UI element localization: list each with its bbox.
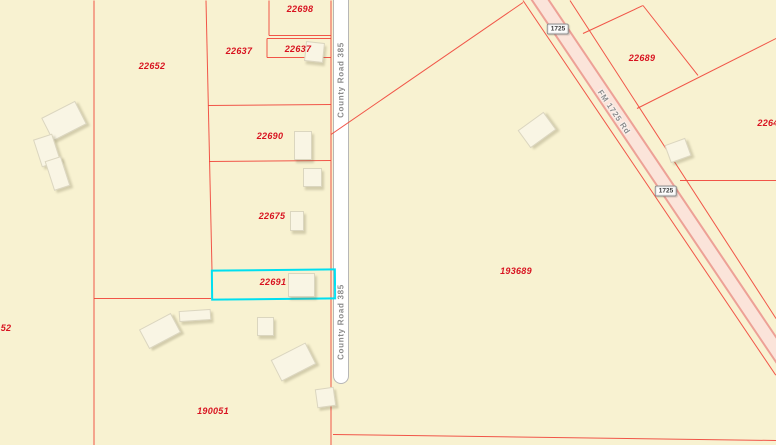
map-canvas[interactable]: County Road 385County Road 385FM 1725 Rd… xyxy=(0,0,776,445)
parcel-label-22690: 22690 xyxy=(257,131,284,141)
parcel-label-193689: 193689 xyxy=(500,266,532,276)
parcel-label-22675: 22675 xyxy=(259,211,286,221)
parcel-label-52: 52 xyxy=(1,323,12,333)
parcel-label-190051: 190051 xyxy=(197,406,229,416)
parcel-label-2264: 2264 xyxy=(757,118,776,128)
parcel-label-22637: 22637 xyxy=(285,44,312,54)
parcel-label-22652: 22652 xyxy=(139,61,166,71)
parcel-label-22637: 22637 xyxy=(226,46,253,56)
parcel-label-22691: 22691 xyxy=(260,277,287,287)
parcel-labels-layer: 2265222637226982263722690226752269119005… xyxy=(0,0,776,445)
parcel-label-22698: 22698 xyxy=(287,4,314,14)
parcel-label-22689: 22689 xyxy=(629,53,656,63)
